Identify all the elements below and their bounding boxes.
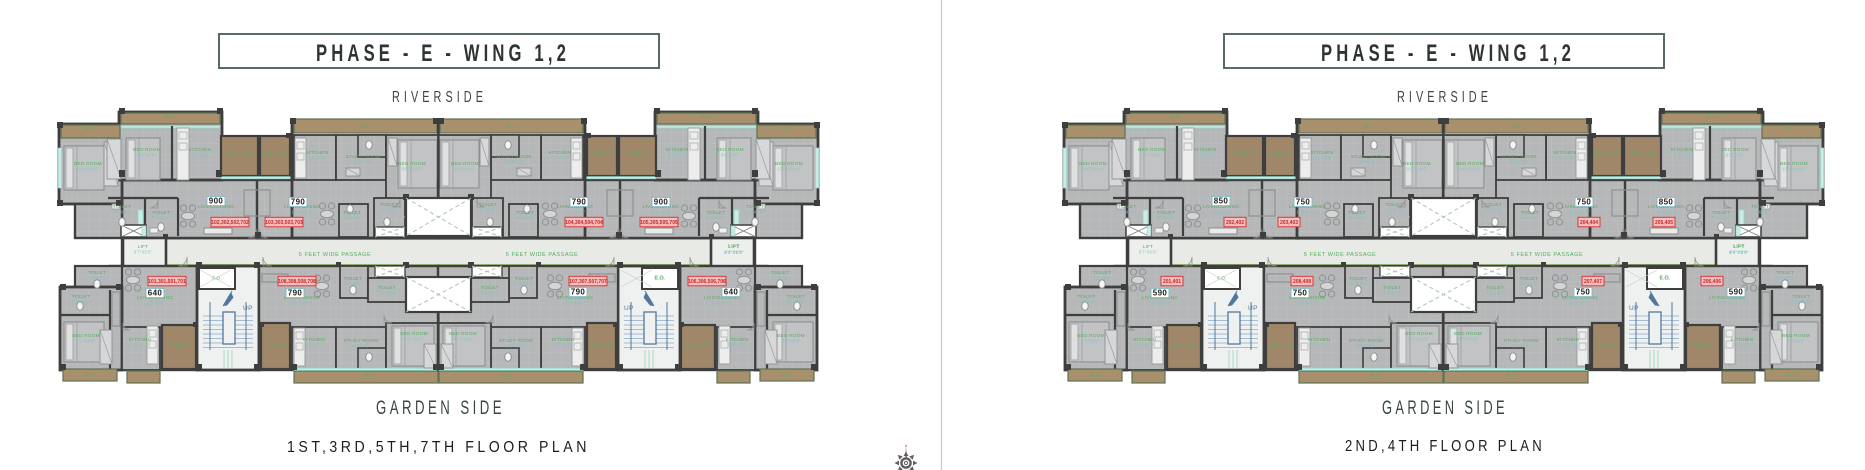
svg-text:W.S.: W.S. [702, 114, 713, 120]
svg-text:106,306,506,706: 106,306,506,706 [688, 279, 726, 285]
svg-text:7'3"X7'3": 7'3"X7'3" [1733, 343, 1752, 348]
svg-text:9'0"X9'0": 9'0"X9'0" [1143, 153, 1162, 158]
svg-text:7'3"X9'0": 7'3"X9'0" [1673, 153, 1692, 158]
svg-text:7'3"X7'3": 7'3"X7'3" [1136, 343, 1155, 348]
svg-text:TERRACE: TERRACE [168, 344, 192, 350]
svg-text:W.S.: W.S. [782, 126, 793, 132]
svg-text:202,402: 202,402 [1226, 220, 1244, 226]
svg-text:850: 850 [1659, 198, 1674, 207]
svg-text:13'0"X9'3": 13'0"X9'3" [564, 210, 585, 215]
svg-text:TERRACE: TERRACE [1594, 343, 1618, 349]
svg-text:4'0"X6'3": 4'0"X6'3" [344, 282, 363, 287]
svg-text:7'0"X3'3": 7'0"X3'3" [88, 276, 107, 281]
svg-text:W.S.: W.S. [1707, 114, 1718, 120]
svg-text:8'0"X7'3": 8'0"X7'3" [1512, 344, 1531, 349]
svg-text:TERRACE: TERRACE [1269, 343, 1293, 349]
svg-text:UP: UP [243, 305, 253, 312]
svg-text:9'3"X9'0": 9'3"X9'0" [77, 339, 96, 344]
svg-text:8'0"X7'3": 8'0"X7'3" [1510, 160, 1529, 165]
svg-text:7'3"X7'3": 7'3"X7'3" [554, 343, 573, 348]
svg-text:9'3"X9'0": 9'3"X9'0" [1787, 339, 1806, 344]
svg-text:RIVERSIDE: RIVERSIDE [392, 89, 487, 106]
svg-text:201,401: 201,401 [1163, 279, 1181, 285]
svg-text:W.S.: W.S. [1170, 114, 1181, 120]
svg-text:4'0"X6'3": 4'0"X6'3" [515, 282, 534, 287]
svg-text:9'0"X10'6": 9'0"X10'6" [401, 167, 422, 172]
svg-text:TERRACE: TERRACE [1173, 344, 1197, 350]
svg-text:W.S.: W.S. [1507, 373, 1518, 379]
svg-text:W.S.: W.S. [1512, 124, 1523, 130]
svg-text:12'0"X9'3": 12'0"X9'3" [291, 301, 312, 306]
svg-text:900: 900 [654, 198, 669, 207]
svg-text:12'0"X9'3": 12'0"X9'3" [564, 301, 585, 306]
svg-text:7'0"X4'0": 7'0"X4'0" [378, 291, 397, 296]
svg-text:14'0"X9'3": 14'0"X9'3" [205, 210, 226, 215]
svg-text:5 FEET WIDE PASSAGE: 5 FEET WIDE PASSAGE [506, 252, 578, 258]
svg-text:TERRACE: TERRACE [626, 152, 650, 158]
svg-text:7'3"X7'3": 7'3"X7'3" [551, 156, 570, 161]
svg-text:6'0"X4'0": 6'0"X4'0" [1077, 300, 1096, 305]
svg-text:590: 590 [1153, 289, 1168, 298]
svg-text:F.O.: F.O. [1217, 276, 1227, 282]
svg-text:10'0"X10'0": 10'0"X10'0" [76, 167, 100, 172]
svg-text:750: 750 [1296, 198, 1311, 207]
svg-text:E.D.: E.D. [654, 276, 665, 282]
svg-text:9'0"X10'6": 9'0"X10'6" [1459, 167, 1480, 172]
svg-text:TERRACE: TERRACE [1690, 344, 1714, 350]
svg-text:F.O.: F.O. [212, 276, 222, 282]
svg-text:7'0"X4'0": 7'0"X4'0" [1486, 291, 1505, 296]
svg-text:PHASE - E - WING 1,2: PHASE - E - WING 1,2 [316, 40, 570, 67]
svg-text:7'0"X4'0": 7'0"X4'0" [113, 210, 132, 215]
svg-text:W.S.: W.S. [85, 373, 96, 379]
svg-text:5'0"X6'0": 5'0"X6'0" [707, 216, 726, 221]
svg-text:5'0"X6'0": 5'0"X6'0" [1157, 216, 1176, 221]
svg-text:6'0"X4'0": 6'0"X4'0" [72, 300, 91, 305]
svg-text:590: 590 [1729, 288, 1744, 297]
svg-text:7'0"X3'3": 7'0"X3'3" [1776, 276, 1795, 281]
svg-text:7'0"X3'3": 7'0"X3'3" [1093, 276, 1112, 281]
svg-text:LIFT: LIFT [1733, 244, 1745, 250]
svg-text:RIVERSIDE: RIVERSIDE [1397, 89, 1492, 106]
svg-text:TERRACE: TERRACE [589, 343, 613, 349]
svg-text:PHASE - E - WING 1,2: PHASE - E - WING 1,2 [1321, 40, 1575, 67]
svg-text:7'3"X7'3": 7'3"X7'3" [1310, 343, 1329, 348]
svg-text:9'3"X9'0": 9'3"X9'0" [1082, 339, 1101, 344]
svg-text:W.S.: W.S. [360, 124, 371, 130]
svg-text:7'3"X7'3": 7'3"X7'3" [728, 343, 747, 348]
svg-text:205,405: 205,405 [1655, 220, 1673, 226]
svg-text:9'0"X9'0": 9'0"X9'0" [721, 153, 740, 158]
svg-text:207,407: 207,407 [1584, 279, 1602, 285]
svg-text:7'0"X3'3": 7'0"X3'3" [771, 276, 790, 281]
svg-text:7'0"X4'0": 7'0"X4'0" [1118, 210, 1137, 215]
svg-text:W.S.: W.S. [1787, 126, 1798, 132]
svg-text:13'0"X9'3": 13'0"X9'3" [1296, 210, 1317, 215]
svg-text:12'0"X9'3": 12'0"X9'3" [1296, 301, 1317, 306]
svg-text:102,302,502,702: 102,302,502,702 [211, 220, 249, 226]
svg-text:790: 790 [571, 288, 586, 297]
svg-text:E.D.: E.D. [1659, 276, 1670, 282]
svg-text:12'0"X9'3": 12'0"X9'3" [1569, 301, 1590, 306]
svg-text:8'0"X7'3": 8'0"X7'3" [1357, 344, 1376, 349]
svg-text:UP: UP [1248, 305, 1258, 312]
svg-text:790: 790 [572, 198, 587, 207]
svg-text:206,406: 206,406 [1703, 279, 1721, 285]
svg-text:TERRACE: TERRACE [264, 343, 288, 349]
svg-text:4'0"X6'0": 4'0"X6'0" [516, 216, 535, 221]
svg-text:10'0"X10'0": 10'0"X10'0" [1782, 167, 1806, 172]
svg-text:W.S.: W.S. [502, 373, 513, 379]
svg-text:750: 750 [1577, 198, 1592, 207]
svg-text:790: 790 [291, 198, 306, 207]
svg-text:203,403: 203,403 [1280, 220, 1298, 226]
svg-text:W.S.: W.S. [1090, 126, 1101, 132]
svg-text:7'0"X4'0": 7'0"X4'0" [1484, 208, 1503, 213]
svg-text:UP: UP [1629, 305, 1639, 312]
svg-text:9'0"X10'6": 9'0"X10'6" [452, 337, 473, 342]
svg-text:14'0"X9'3": 14'0"X9'3" [1210, 210, 1231, 215]
svg-text:7'3"X7'3": 7'3"X7'3" [131, 343, 150, 348]
svg-text:640: 640 [724, 288, 739, 297]
svg-text:W.S.: W.S. [1090, 373, 1101, 379]
svg-text:9'0"X9'0": 9'0"X9'0" [138, 153, 157, 158]
svg-text:7'0"X4'0": 7'0"X4'0" [746, 210, 765, 215]
svg-text:5 FEET WIDE PASSAGE: 5 FEET WIDE PASSAGE [1304, 252, 1376, 258]
svg-text:103,303,503,703: 103,303,503,703 [265, 220, 303, 226]
svg-text:7'3"X7'3": 7'3"X7'3" [308, 156, 327, 161]
svg-text:TERRACE: TERRACE [590, 152, 614, 158]
svg-text:13'0"X9'3": 13'0"X9'3" [291, 210, 312, 215]
svg-text:7'0"X4'0": 7'0"X4'0" [380, 208, 399, 213]
svg-text:8'0"X7'3": 8'0"X7'3" [352, 344, 371, 349]
svg-text:790: 790 [288, 289, 303, 298]
svg-text:W.S.: W.S. [85, 126, 96, 132]
svg-text:TERRACE: TERRACE [263, 152, 287, 158]
svg-text:4'0"X6'0": 4'0"X6'0" [1348, 216, 1367, 221]
svg-text:TERRACE: TERRACE [227, 152, 251, 158]
svg-text:7'0"X4'0": 7'0"X4'0" [1383, 291, 1402, 296]
svg-text:10'0"X10'0": 10'0"X10'0" [777, 167, 801, 172]
svg-text:9'0"X10'6": 9'0"X10'6" [1457, 337, 1478, 342]
svg-text:750: 750 [1576, 288, 1591, 297]
svg-text:W.S.: W.S. [1370, 373, 1381, 379]
svg-text:9'0"X10'6": 9'0"X10'6" [1408, 337, 1429, 342]
svg-text:13'5"X9'3": 13'5"X9'3" [1716, 301, 1737, 306]
svg-text:5'0"X6'0": 5'0"X6'0" [152, 216, 171, 221]
svg-text:LIFT: LIFT [728, 244, 740, 250]
svg-text:750: 750 [1293, 289, 1308, 298]
svg-text:8'0"X7'3": 8'0"X7'3" [505, 160, 524, 165]
svg-text:104,304,504,704: 104,304,504,704 [565, 220, 603, 226]
svg-text:7'0"X4'0": 7'0"X4'0" [1385, 208, 1404, 213]
svg-text:13'0"X9'3": 13'0"X9'3" [1569, 210, 1590, 215]
svg-text:W.S.: W.S. [1787, 373, 1798, 379]
svg-text:900: 900 [209, 197, 224, 206]
svg-text:TERRACE: TERRACE [685, 344, 709, 350]
svg-text:7'3"X7'3": 7'3"X7'3" [1556, 156, 1575, 161]
svg-text:6'6"X5'0": 6'6"X5'0" [724, 250, 745, 255]
svg-text:9'0"X10'6": 9'0"X10'6" [454, 167, 475, 172]
svg-text:850: 850 [1214, 197, 1229, 206]
svg-text:108,308,508,708: 108,308,508,708 [278, 279, 316, 285]
svg-text:640: 640 [148, 289, 163, 298]
svg-text:8'0"X7'3": 8'0"X7'3" [354, 160, 373, 165]
svg-text:UP: UP [624, 305, 634, 312]
svg-text:8'0"X7'3": 8'0"X7'3" [507, 344, 526, 349]
svg-text:W.S.: W.S. [165, 114, 176, 120]
svg-text:6'0"X4'0": 6'0"X4'0" [1792, 300, 1811, 305]
svg-text:7'3"X9'0": 7'3"X9'0" [191, 153, 210, 158]
svg-text:W.S.: W.S. [1365, 124, 1376, 130]
svg-text:2ND,4TH FLOOR PLAN: 2ND,4TH FLOOR PLAN [1345, 438, 1545, 455]
svg-text:208,408: 208,408 [1293, 279, 1311, 285]
svg-text:8'0"X7'3": 8'0"X7'3" [1359, 160, 1378, 165]
svg-text:13'5"X9'3": 13'5"X9'3" [711, 301, 732, 306]
svg-text:6'7"X5'0": 6'7"X5'0" [1139, 250, 1158, 255]
svg-text:W.S.: W.S. [507, 124, 518, 130]
svg-text:6'7"X5'0": 6'7"X5'0" [134, 250, 153, 255]
svg-text:7'3"X9'0": 7'3"X9'0" [1196, 153, 1215, 158]
svg-text:GARDEN SIDE: GARDEN SIDE [376, 398, 505, 419]
svg-text:TERRACE: TERRACE [1631, 152, 1655, 158]
svg-text:13'5"X9'3": 13'5"X9'3" [144, 301, 165, 306]
svg-text:1ST,3RD,5TH,7TH FLOOR PLAN: 1ST,3RD,5TH,7TH FLOOR PLAN [287, 439, 590, 456]
svg-text:14'0"X9'3": 14'0"X9'3" [650, 210, 671, 215]
svg-text:GARDEN SIDE: GARDEN SIDE [1382, 398, 1508, 419]
svg-text:9'0"X9'0": 9'0"X9'0" [1726, 153, 1745, 158]
svg-text:9'0"X10'6": 9'0"X10'6" [403, 337, 424, 342]
svg-text:TERRACE: TERRACE [1232, 152, 1256, 158]
svg-text:7'3"X9'0": 7'3"X9'0" [668, 153, 687, 158]
svg-text:4'0"X6'3": 4'0"X6'3" [1520, 282, 1539, 287]
svg-text:W.S.: W.S. [782, 373, 793, 379]
svg-text:6'0"X4'0": 6'0"X4'0" [787, 300, 806, 305]
svg-text:TERRACE: TERRACE [1595, 152, 1619, 158]
svg-text:7'0"X4'0": 7'0"X4'0" [1751, 210, 1770, 215]
svg-text:9'3"X9'0": 9'3"X9'0" [782, 339, 801, 344]
svg-text:9'0"X10'6": 9'0"X10'6" [1406, 167, 1427, 172]
svg-text:TERRACE: TERRACE [1268, 152, 1292, 158]
svg-text:7'3"X7'3": 7'3"X7'3" [1313, 156, 1332, 161]
svg-text:5'0"X6'0": 5'0"X6'0" [1712, 216, 1731, 221]
svg-text:4'0"X6'3": 4'0"X6'3" [1349, 282, 1368, 287]
svg-text:10'0"X10'0": 10'0"X10'0" [1081, 167, 1105, 172]
svg-text:W.S.: W.S. [365, 373, 376, 379]
svg-text:101,301,501,701: 101,301,501,701 [148, 279, 186, 285]
svg-text:7'3"X7'3": 7'3"X7'3" [305, 343, 324, 348]
svg-text:6'6"X5'0": 6'6"X5'0" [1729, 250, 1750, 255]
svg-text:204,404: 204,404 [1580, 220, 1598, 226]
svg-text:5 FEET WIDE PASSAGE: 5 FEET WIDE PASSAGE [1511, 252, 1583, 258]
svg-text:4'0"X6'0": 4'0"X6'0" [1521, 216, 1540, 221]
svg-text:4'0"X6'0": 4'0"X6'0" [343, 216, 362, 221]
svg-text:107,307,507,707: 107,307,507,707 [569, 279, 607, 285]
svg-text:14'0"X9'3": 14'0"X9'3" [1655, 210, 1676, 215]
svg-text:5 FEET WIDE PASSAGE: 5 FEET WIDE PASSAGE [299, 252, 371, 258]
svg-text:7'0"X4'0": 7'0"X4'0" [479, 208, 498, 213]
svg-text:105,305,505,705: 105,305,505,705 [640, 220, 678, 226]
svg-text:7'0"X4'0": 7'0"X4'0" [481, 291, 500, 296]
svg-text:7'3"X7'3": 7'3"X7'3" [1559, 343, 1578, 348]
svg-text:13'5"X9'3": 13'5"X9'3" [1149, 301, 1170, 306]
